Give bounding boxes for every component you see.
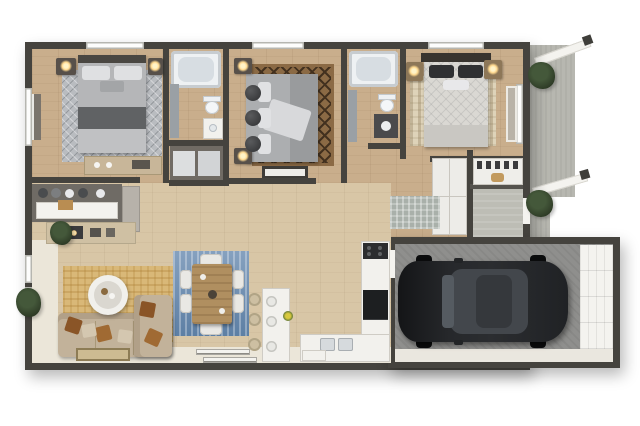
dish xyxy=(96,189,105,198)
lamp-icon xyxy=(60,60,72,72)
small-appliance xyxy=(90,228,101,237)
round-pillow xyxy=(245,136,261,152)
lamp-icon xyxy=(237,60,249,72)
closet-door xyxy=(198,151,220,176)
window-frame xyxy=(32,94,41,140)
burner xyxy=(378,246,382,250)
garage-door xyxy=(580,245,613,349)
lamp-icon xyxy=(149,60,161,72)
car-mirror xyxy=(454,258,463,263)
refrigerator-icon xyxy=(363,290,388,320)
car-windshield xyxy=(442,275,454,328)
burner xyxy=(367,246,371,250)
lamp-icon xyxy=(408,65,420,77)
toilet-icon xyxy=(203,96,221,114)
window-icon xyxy=(516,84,523,144)
wall-bed1-south xyxy=(32,177,140,183)
wall-bath2-south xyxy=(368,143,406,149)
sink xyxy=(381,121,391,131)
pillow xyxy=(114,66,142,80)
shower-glass xyxy=(170,84,179,138)
basket xyxy=(491,173,504,182)
window-frame xyxy=(506,86,517,142)
dining-chair xyxy=(232,270,244,289)
pillow xyxy=(429,65,454,78)
plate xyxy=(266,296,277,307)
car xyxy=(398,255,568,348)
vanity xyxy=(203,118,223,139)
headboard xyxy=(78,55,146,63)
bed xyxy=(78,55,146,153)
closet-shelves xyxy=(473,158,523,185)
railing-post xyxy=(579,169,590,180)
lamp-icon xyxy=(237,150,249,162)
headboard xyxy=(421,53,491,62)
wall-closet1-south xyxy=(169,180,229,186)
window-icon xyxy=(25,255,32,283)
table-tray xyxy=(94,281,122,309)
potted-plant-icon xyxy=(50,221,72,245)
buffet-counter xyxy=(32,184,122,222)
car-mirror xyxy=(454,340,463,345)
decor-item xyxy=(109,293,115,299)
bathtub xyxy=(349,51,398,87)
tub-basin xyxy=(178,57,214,82)
closet xyxy=(170,146,223,180)
buffet-drawer xyxy=(36,202,118,219)
kitchen-cart xyxy=(302,350,326,361)
plate xyxy=(266,316,277,327)
wall-bed2-south xyxy=(229,178,316,184)
flower-decor xyxy=(283,311,293,321)
toilet-bowl xyxy=(205,101,219,114)
plate xyxy=(266,341,277,352)
entry-tile xyxy=(467,188,523,237)
dining-chair xyxy=(232,294,244,313)
dresser xyxy=(262,166,308,178)
doormat xyxy=(76,348,130,361)
dresser-front xyxy=(265,169,305,176)
toilet-icon xyxy=(378,94,396,112)
stove-icon xyxy=(363,243,388,259)
blanket-fold xyxy=(78,107,146,129)
window-icon xyxy=(428,42,484,49)
sink xyxy=(209,124,217,132)
coffee-table xyxy=(88,275,128,315)
pillow xyxy=(82,66,110,80)
round-pillow xyxy=(245,85,261,101)
knob xyxy=(106,162,112,168)
small-appliance xyxy=(106,228,115,237)
wall-bed2-bath2 xyxy=(341,49,347,183)
closet-door xyxy=(173,151,195,176)
sliding-door-track xyxy=(196,349,250,355)
toilet-bowl xyxy=(380,99,394,112)
window-icon xyxy=(86,42,144,49)
lamp-icon xyxy=(487,63,499,75)
dish xyxy=(38,188,48,198)
throw-pillow xyxy=(81,323,97,338)
hallway-runner-rug xyxy=(390,196,440,229)
centerpiece xyxy=(208,290,217,299)
sink-basin xyxy=(338,338,353,351)
throw-pillow xyxy=(117,329,133,344)
place-setting xyxy=(219,308,225,314)
bed xyxy=(424,53,488,147)
tub-basin xyxy=(356,57,391,81)
dish xyxy=(65,189,74,198)
dresser xyxy=(84,156,162,175)
railing-post xyxy=(582,34,594,46)
knob xyxy=(94,162,100,168)
shower-glass xyxy=(348,90,357,142)
bar-stool xyxy=(248,313,261,326)
decor-item xyxy=(132,160,150,169)
potted-plant-icon xyxy=(16,288,41,317)
potted-plant-icon xyxy=(526,190,553,217)
burner xyxy=(378,252,382,256)
bed-foot xyxy=(78,129,146,153)
window-icon xyxy=(252,42,304,49)
dining-chair xyxy=(180,294,192,313)
hanging-clothes xyxy=(477,161,519,169)
vanity xyxy=(374,114,398,138)
round-pillow xyxy=(245,110,261,126)
dish xyxy=(51,188,61,198)
cutting-board xyxy=(58,200,73,210)
garage-apron xyxy=(395,349,613,362)
wall-bath1-bed2 xyxy=(223,49,229,183)
potted-plant-icon xyxy=(528,62,555,89)
pillow xyxy=(458,65,483,78)
decor-item xyxy=(101,288,108,295)
burner xyxy=(367,252,371,256)
floorplan-canvas xyxy=(0,0,640,426)
dining-table xyxy=(192,264,232,324)
dining-chair xyxy=(180,270,192,289)
place-setting xyxy=(200,274,206,280)
throw-pillow xyxy=(139,301,156,318)
bed-foot xyxy=(424,125,488,147)
dish xyxy=(78,188,88,198)
bathtub xyxy=(171,51,221,88)
car-roof xyxy=(476,275,512,328)
sliding-door-track xyxy=(203,357,257,363)
window-icon xyxy=(25,88,32,146)
accent-pillow xyxy=(100,81,124,92)
bar-stool xyxy=(248,293,261,306)
wall-bed1-bath1 xyxy=(163,49,169,183)
accent-pillow xyxy=(443,80,469,90)
